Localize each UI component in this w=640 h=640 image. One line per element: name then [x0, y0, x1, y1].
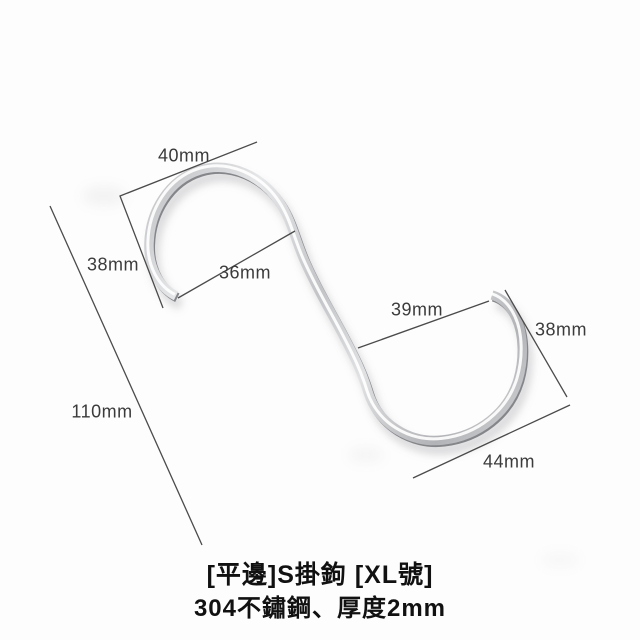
- dimension-label-top-hook-opening: 36mm: [219, 263, 271, 284]
- dimension-label-bottom-hook-opening: 39mm: [391, 300, 443, 321]
- s-hook-shadow: [154, 176, 527, 449]
- product-dimension-image: 40mm 38mm 36mm 110mm 39mm 38mm 44mm [平邊]…: [0, 0, 640, 640]
- dimension-label-bottom-hook-depth: 38mm: [535, 320, 587, 341]
- dimension-label-bottom-hook-width: 44mm: [483, 452, 535, 473]
- product-caption: [平邊]S掛鉤 [XL號] 304不鏽鋼、厚度2mm: [0, 558, 640, 626]
- dimension-label-top-hook-depth: 38mm: [87, 255, 139, 276]
- s-hook-highlight: [148, 166, 521, 439]
- product-spec: 304不鏽鋼、厚度2mm: [0, 592, 640, 626]
- s-hook-body: [149, 167, 522, 440]
- dimension-label-top-hook-width: 40mm: [158, 146, 210, 167]
- product-name: [平邊]S掛鉤 [XL號]: [0, 558, 640, 592]
- s-hook-edge: [150, 169, 523, 442]
- dimension-label-overall-length: 110mm: [71, 402, 132, 423]
